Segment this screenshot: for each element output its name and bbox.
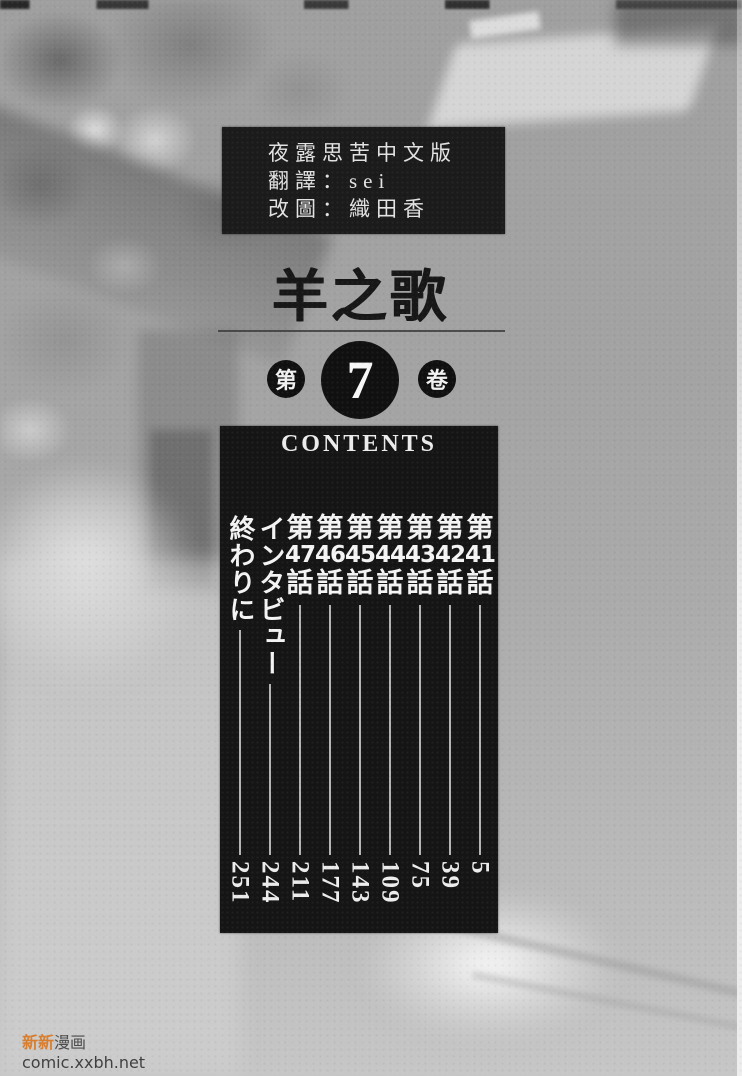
toc-item: 第42話39 [435, 515, 465, 923]
toc-item: 第46話177 [315, 515, 345, 923]
toc-leader-line [269, 684, 271, 855]
toc-page-number: 109 [378, 861, 403, 905]
background-sunlit-wall [428, 26, 718, 129]
toc-leader-line [389, 605, 391, 855]
watermark-url: comic.xxbh.net [22, 1053, 145, 1073]
toc-item: 第41話5 [465, 515, 495, 923]
toc-item-label: 第42話 [435, 515, 465, 598]
background-streak [472, 971, 742, 1035]
volume-suffix-badge: 卷 [418, 360, 456, 398]
toc-page-number: 143 [348, 861, 373, 905]
toc-page-number-area: 244 [258, 861, 283, 923]
credit-line-edition: 夜露思苦中文版 [268, 139, 505, 167]
toc-item-label: 第45話 [345, 515, 375, 598]
toc-page-number-area: 177 [318, 861, 343, 923]
background-foliage [0, 0, 440, 500]
credit-line-translator: 翻譯：sei [268, 167, 505, 195]
toc-item-label: 第46話 [315, 515, 345, 598]
toc-page-number: 211 [288, 861, 313, 903]
watermark-site-rest: 漫画 [54, 1033, 86, 1052]
toc-item: インタビュー244 [255, 515, 285, 923]
toc-item: 終わりに251 [225, 515, 255, 923]
toc-page-number: 39 [438, 861, 463, 890]
toc-page-number-area: 39 [438, 861, 463, 923]
background-light-patch-left [0, 460, 200, 690]
toc-page-number: 5 [468, 861, 493, 876]
toc-leader-line [419, 605, 421, 855]
toc-leader-line [329, 605, 331, 855]
watermark-site-accent: 新新 [22, 1033, 54, 1052]
toc-leader-line [239, 630, 241, 855]
contents-header: CONTENTS [220, 431, 498, 458]
toc-item: 第44話109 [375, 515, 405, 923]
toc-page-number: 244 [258, 861, 283, 905]
toc-item: 第45話143 [345, 515, 375, 923]
volume-prefix-badge: 第 [267, 360, 305, 398]
toc-page-number-area: 109 [378, 861, 403, 923]
credit-line-editor: 改圖：織田香 [268, 195, 505, 223]
toc-leader-line [449, 605, 451, 855]
toc-leader-line [479, 605, 481, 855]
toc-page-number-area: 75 [408, 861, 433, 923]
title-divider [218, 330, 505, 332]
toc-leader-line [299, 605, 301, 855]
background-light-spot [469, 11, 541, 39]
watermark: 新新漫画 comic.xxbh.net [22, 1033, 145, 1073]
contents-box: CONTENTS 第41話5第42話39第43話75第44話109第45話143… [220, 426, 498, 933]
background-dark-corner [615, 0, 742, 45]
toc-item-label: 第47話 [285, 515, 315, 598]
volume-number-badge: 7 [321, 341, 399, 419]
toc-leader-line [359, 605, 361, 855]
toc-item: 第43話75 [405, 515, 435, 923]
toc-item-label: 終わりに [227, 515, 253, 623]
watermark-site-name: 新新漫画 [22, 1033, 145, 1053]
series-title: 羊之歌 [200, 252, 520, 333]
background-light-bottom-left [0, 560, 240, 1076]
toc-list: 第41話5第42話39第43話75第44話109第45話143第46話177第4… [225, 515, 495, 923]
toc-page-number: 177 [318, 861, 343, 905]
toc-item-label: 第44話 [375, 515, 405, 598]
background-top-edge [0, 0, 742, 9]
toc-item: 第47話211 [285, 515, 315, 923]
toc-item-label: 第43話 [405, 515, 435, 598]
toc-item-label: 第41話 [465, 515, 495, 598]
toc-page-number: 75 [408, 861, 433, 890]
toc-page-number-area: 143 [348, 861, 373, 923]
toc-page-number-area: 211 [288, 861, 313, 923]
scanned-manga-contents-page: 夜露思苦中文版 翻譯：sei 改圖：織田香 羊之歌 第 7 卷 CONTENTS… [0, 0, 742, 1076]
toc-page-number-area: 251 [228, 861, 253, 923]
toc-page-number: 251 [228, 861, 253, 905]
credit-box: 夜露思苦中文版 翻譯：sei 改圖：織田香 [222, 127, 505, 234]
background-gate-doorway [150, 430, 212, 585]
background-scan-edge [737, 0, 742, 1076]
toc-page-number-area: 5 [468, 861, 493, 923]
toc-item-label: インタビュー [257, 515, 283, 677]
